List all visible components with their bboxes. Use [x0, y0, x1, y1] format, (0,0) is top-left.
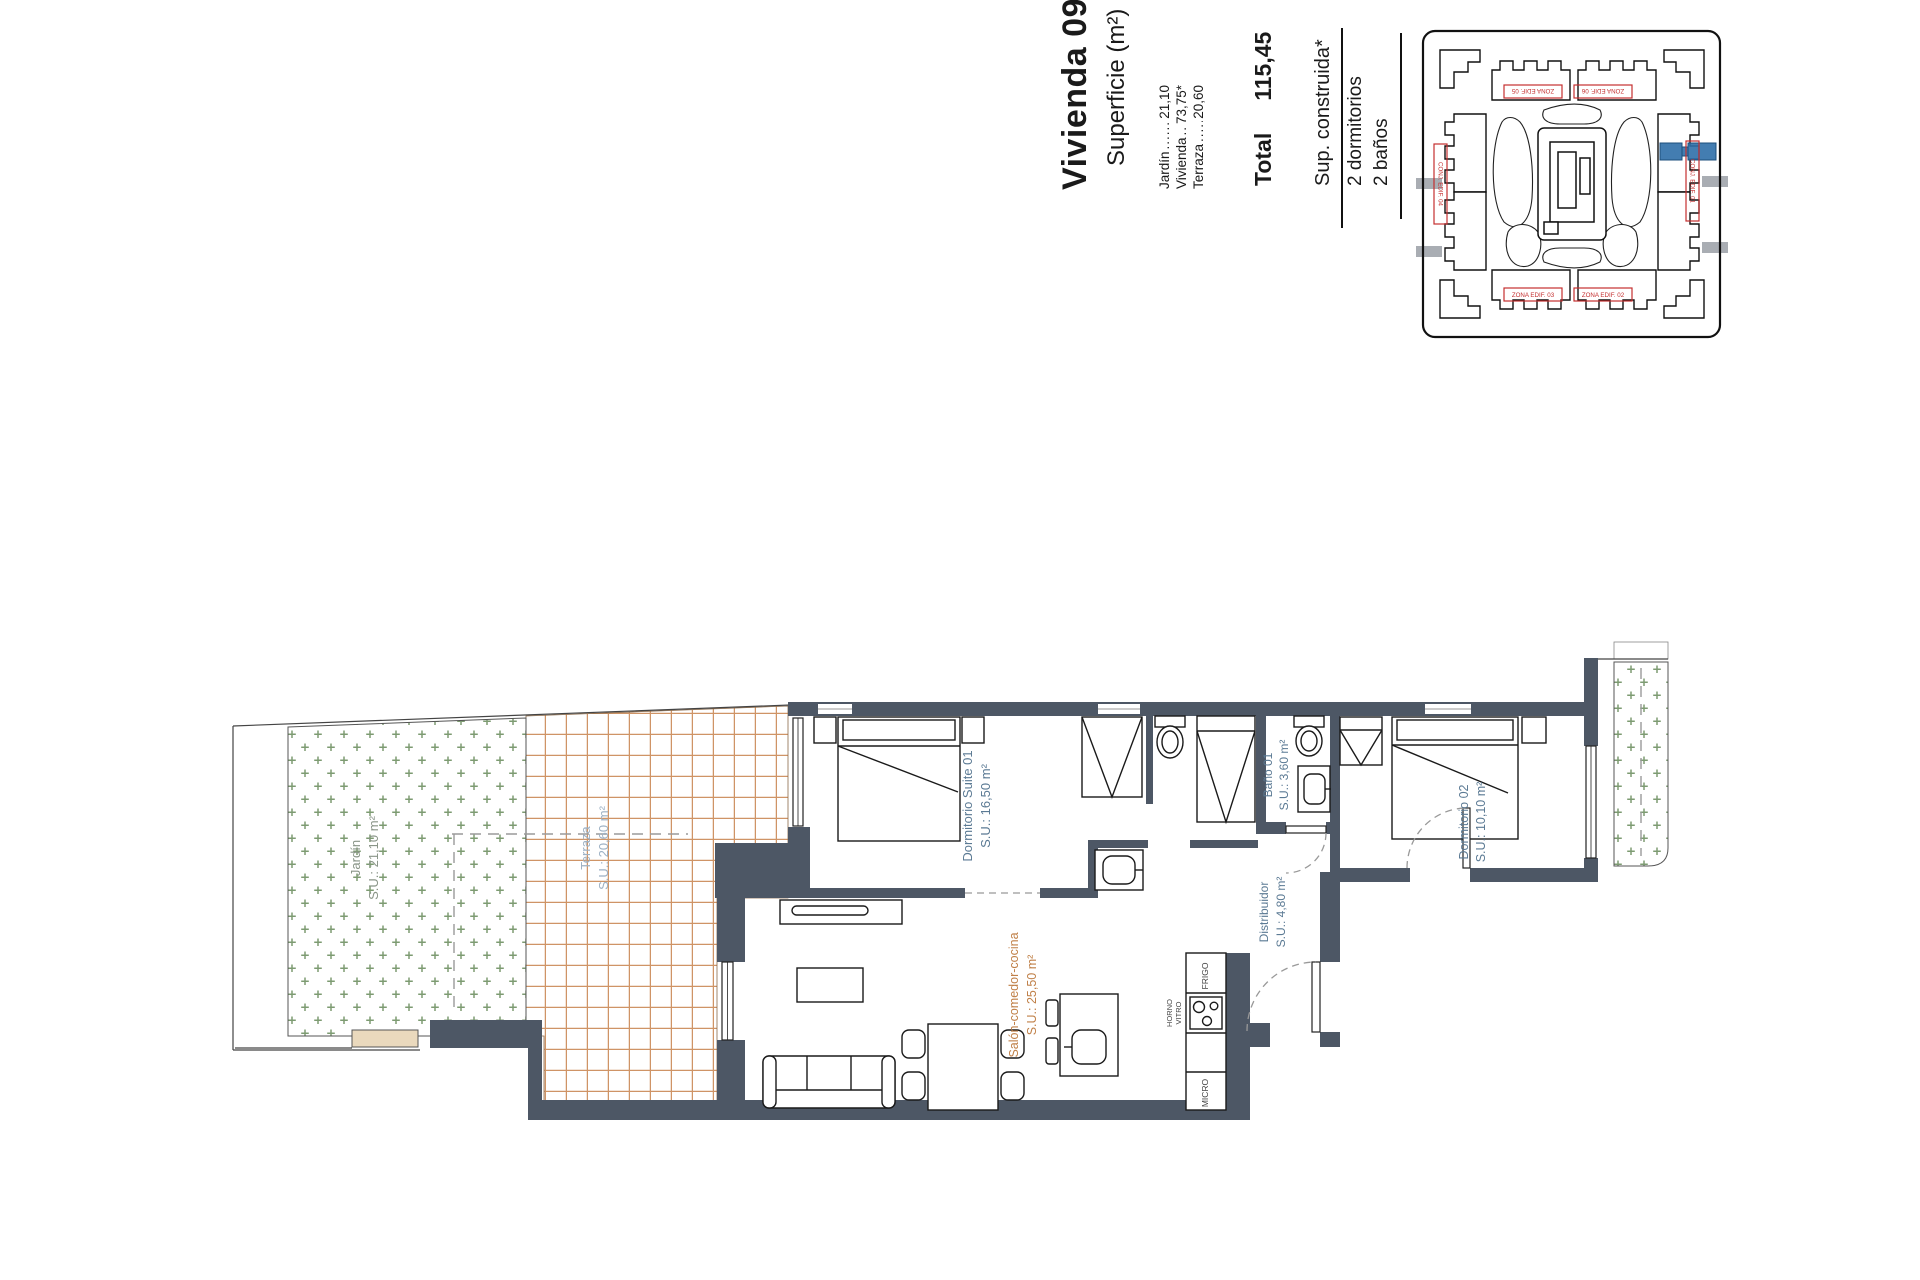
- kitchen-island: [1046, 994, 1118, 1076]
- svg-text:Jardín: Jardín: [348, 840, 363, 876]
- label-suite: Dormitorio Suite 01 S.U.: 16,50 m²: [960, 750, 993, 861]
- suite-bed: [814, 717, 984, 841]
- svg-text:S.U.: 10,10 m²: S.U.: 10,10 m²: [1474, 782, 1488, 863]
- ensuite-toilet-icon: [1155, 716, 1185, 758]
- svg-text:S.U.: 3,60 m²: S.U.: 3,60 m²: [1277, 740, 1291, 811]
- svg-text:Salón-comedor-cocina: Salón-comedor-cocina: [1007, 932, 1021, 1057]
- svg-text:Terraza: Terraza: [578, 826, 593, 870]
- label-frigo: FRIGO: [1200, 962, 1210, 989]
- bano1-toilet-icon: [1294, 716, 1324, 756]
- svg-text:S.U.: 16,50 m²: S.U.: 16,50 m²: [978, 763, 993, 847]
- nightstand: [962, 717, 984, 743]
- terraza-area: [526, 706, 788, 1106]
- svg-text:S.U.: 25,50 m²: S.U.: 25,50 m²: [1025, 955, 1039, 1036]
- nightstand: [1522, 717, 1546, 743]
- page: Vivienda 09 Superficie (m²) Jardín .....…: [0, 0, 1920, 1280]
- chair: [902, 1072, 925, 1100]
- coffee-table: [797, 968, 863, 1002]
- dining-table: [902, 1024, 1024, 1110]
- chair: [1001, 1072, 1024, 1100]
- svg-text:S.U.: 4,80 m²: S.U.: 4,80 m²: [1274, 877, 1288, 948]
- suite-wardrobe: [1082, 717, 1142, 797]
- cooktop-icon: [1190, 997, 1222, 1029]
- chair: [902, 1030, 925, 1058]
- bano1-sink-icon: [1298, 766, 1331, 812]
- right-planter: [1614, 642, 1668, 659]
- svg-text:Dormitorio Suite 01: Dormitorio Suite 01: [960, 750, 975, 861]
- entrance-door-leaf: [1312, 962, 1320, 1032]
- label-distribuidor: Distribuidor S.U.: 4,80 m²: [1257, 877, 1288, 948]
- svg-text:S.U.: 20,60 m²: S.U.: 20,60 m²: [596, 805, 611, 889]
- svg-text:Baño 01: Baño 01: [1261, 752, 1275, 797]
- ensuite-shower: [1197, 716, 1255, 822]
- floor-plan: Jardín S.U.: 21,10 m² Terraza S.U.: 20,6…: [0, 0, 1920, 1280]
- sofa: [763, 1056, 895, 1108]
- svg-text:Distribuidor: Distribuidor: [1257, 882, 1271, 943]
- label-horno: HORNO: [1165, 999, 1174, 1027]
- bano1-door-arc: [1286, 833, 1326, 873]
- nightstand: [814, 717, 836, 743]
- entrance-door-arc: [1247, 962, 1316, 1031]
- garden-area: [288, 718, 526, 1036]
- label-vitro: VITRO: [1174, 1001, 1183, 1024]
- tv-cabinet: [780, 900, 902, 924]
- garden-bench: [352, 1030, 418, 1047]
- svg-text:S.U.: 21,10 m²: S.U.: 21,10 m²: [366, 815, 381, 899]
- dorm2-closet: [1340, 717, 1382, 765]
- svg-text:Dormitorio 02: Dormitorio 02: [1457, 784, 1471, 859]
- label-micro: MICRO: [1200, 1078, 1210, 1107]
- ensuite-sink-icon: [1095, 850, 1143, 890]
- bano1-door-leaf: [1286, 826, 1326, 833]
